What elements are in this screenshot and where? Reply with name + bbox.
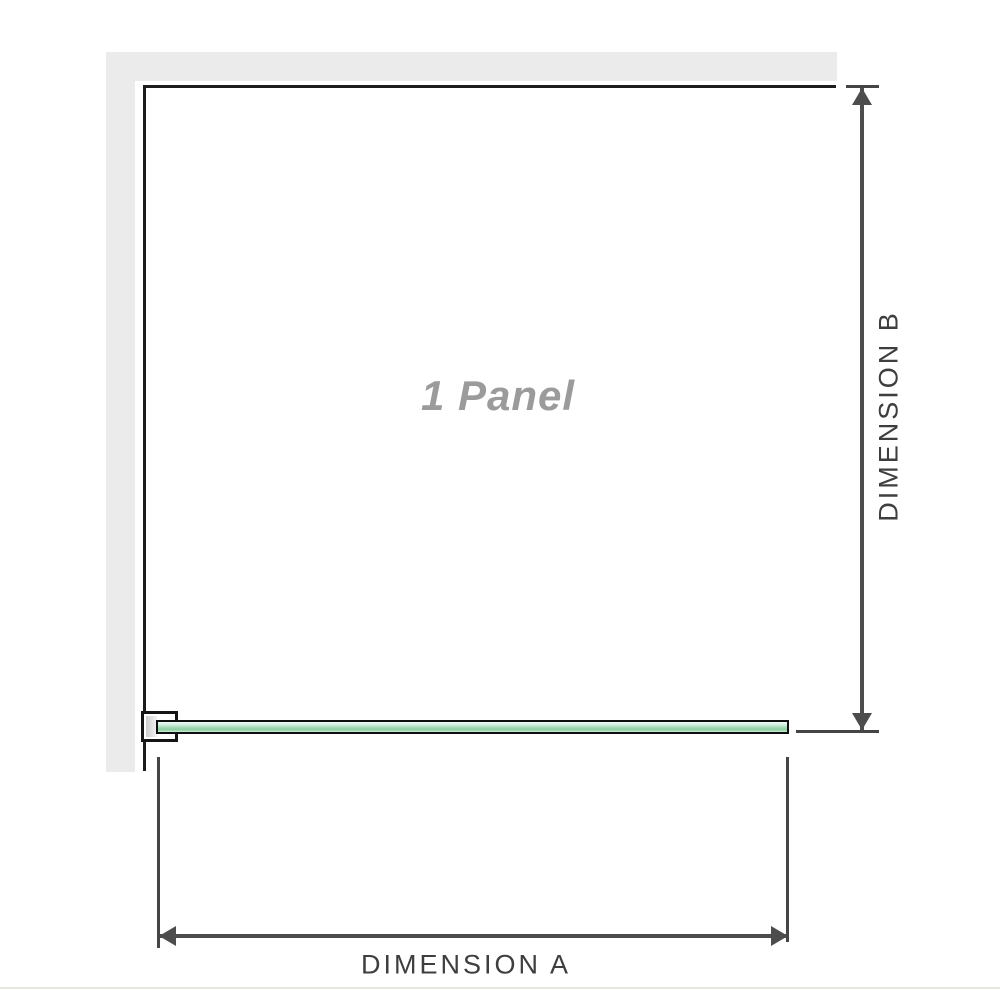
- dimension-b-arrowhead-down-icon: [852, 713, 872, 730]
- dimension-b-bottom-tick: [796, 730, 879, 733]
- dimension-b-label: DIMENSION B: [874, 310, 905, 522]
- panel-left-edge-line: [143, 85, 146, 771]
- dimension-a-arrowhead-right-icon: [771, 926, 788, 946]
- wall-left-bar: [106, 52, 135, 772]
- diagram-canvas: 1 Panel DIMENSION B DIMENSION A: [0, 0, 1000, 1000]
- dimension-a-label: DIMENSION A: [361, 950, 571, 981]
- image-bottom-divider: [0, 987, 1000, 989]
- dimension-b-arrow-line: [860, 88, 864, 730]
- dimension-a-arrow-line: [159, 934, 788, 938]
- glass-panel-bar: [156, 720, 789, 734]
- wall-top-bar: [106, 52, 837, 81]
- dimension-a-arrowhead-left-icon: [159, 926, 176, 946]
- panel-top-edge-line: [143, 85, 836, 88]
- dimension-a-left-tick: [157, 757, 160, 948]
- dimension-b-arrowhead-up-icon: [852, 88, 872, 105]
- dimension-a-right-tick: [786, 757, 789, 942]
- panel-count-label: 1 Panel: [421, 372, 575, 420]
